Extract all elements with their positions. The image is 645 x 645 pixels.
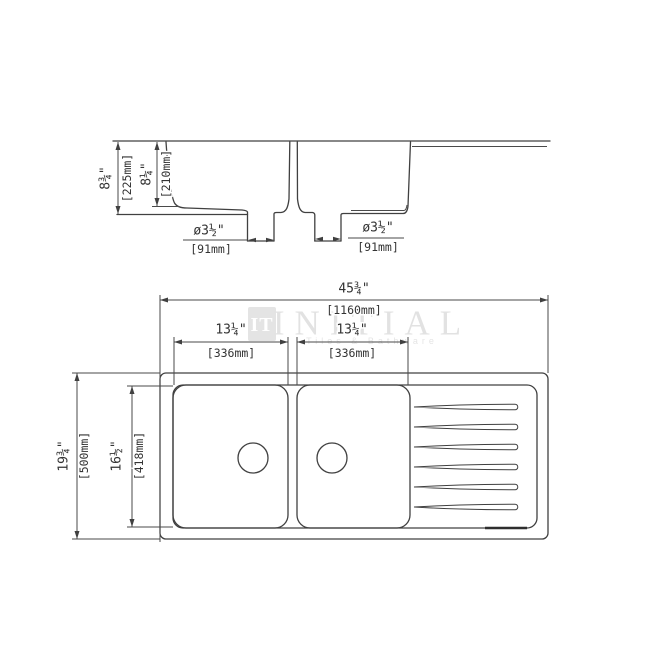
rib <box>414 464 518 470</box>
callout-right-drain: ø3½" [91mm] <box>315 221 404 255</box>
left-bowl <box>173 385 288 528</box>
bowl-length-mm: [418mm] <box>132 432 146 480</box>
rib <box>414 444 518 450</box>
arrow-up-icon <box>116 142 121 150</box>
drainboard-ribs <box>414 404 518 510</box>
arrow-up-icon <box>130 386 135 394</box>
dim-bowl-length: 16½" [418mm] <box>110 386 174 527</box>
dim-overall-depth: 8¾" [225mm] <box>99 142 135 214</box>
left-drain-mm: [91mm] <box>190 242 232 256</box>
arrow-right-icon <box>540 298 548 303</box>
rib <box>414 404 518 410</box>
callout-left-drain: ø3½" [91mm] <box>183 224 274 257</box>
arrow-down-icon <box>116 206 121 214</box>
right-bowl-width-mm: [336mm] <box>328 346 376 360</box>
section-view: 8¾" [225mm] 8¼" [210mm] ø3½" [91mm] ø3½"… <box>99 141 551 256</box>
section-divider-left-wall <box>274 142 290 241</box>
bowl-length-inches: 16½" <box>110 440 125 471</box>
right-bowl <box>297 385 410 528</box>
right-drain-mm: [91mm] <box>357 240 399 254</box>
sink-outer-rim <box>160 373 548 539</box>
watermark-tagline: Tiles & Bathware <box>306 336 438 346</box>
rib <box>414 424 518 430</box>
arrow-down-icon <box>130 519 135 527</box>
overall-width-mm: [1160mm] <box>326 303 381 317</box>
dim-bowl-depth-mm: [210mm] <box>159 150 173 198</box>
arrow-down-icon <box>75 531 80 539</box>
left-bowl-width-mm: [336mm] <box>207 346 255 360</box>
sink-spec-drawing: IT INITIAL Tiles & Bathware 8¾" [225mm <box>0 0 645 645</box>
dim-overall-depth-inches: 8¾" <box>99 166 114 189</box>
left-drain-hole <box>238 443 268 473</box>
overall-width-inches: 45¾" <box>338 282 369 297</box>
left-drain-inches: ø3½" <box>193 224 224 239</box>
arrow-left-icon <box>174 340 182 345</box>
arrow-up-icon <box>75 373 80 381</box>
technical-drawing-canvas: IT INITIAL Tiles & Bathware 8¾" [225mm <box>0 0 645 645</box>
watermark-logo-text: IT <box>250 314 273 336</box>
right-drain-hole <box>317 443 347 473</box>
section-right-bowl-inner-bottom <box>351 205 407 211</box>
section-divider-right-wall <box>297 142 315 241</box>
dim-bowl-depth-inches: 8¼" <box>140 162 155 185</box>
plan-overall-depth-inches: 19¾" <box>57 440 72 471</box>
arrow-left-icon <box>160 298 168 303</box>
right-bowl-width-inches: 13¼" <box>336 323 367 338</box>
arrow-up-icon <box>155 142 160 150</box>
right-drain-inches: ø3½" <box>362 221 393 236</box>
left-bowl-width-inches: 13¼" <box>215 323 246 338</box>
rib <box>414 504 518 510</box>
plan-overall-depth-mm: [500mm] <box>77 432 91 480</box>
rib <box>414 484 518 490</box>
dim-overall-depth-mm: [225mm] <box>120 154 134 202</box>
